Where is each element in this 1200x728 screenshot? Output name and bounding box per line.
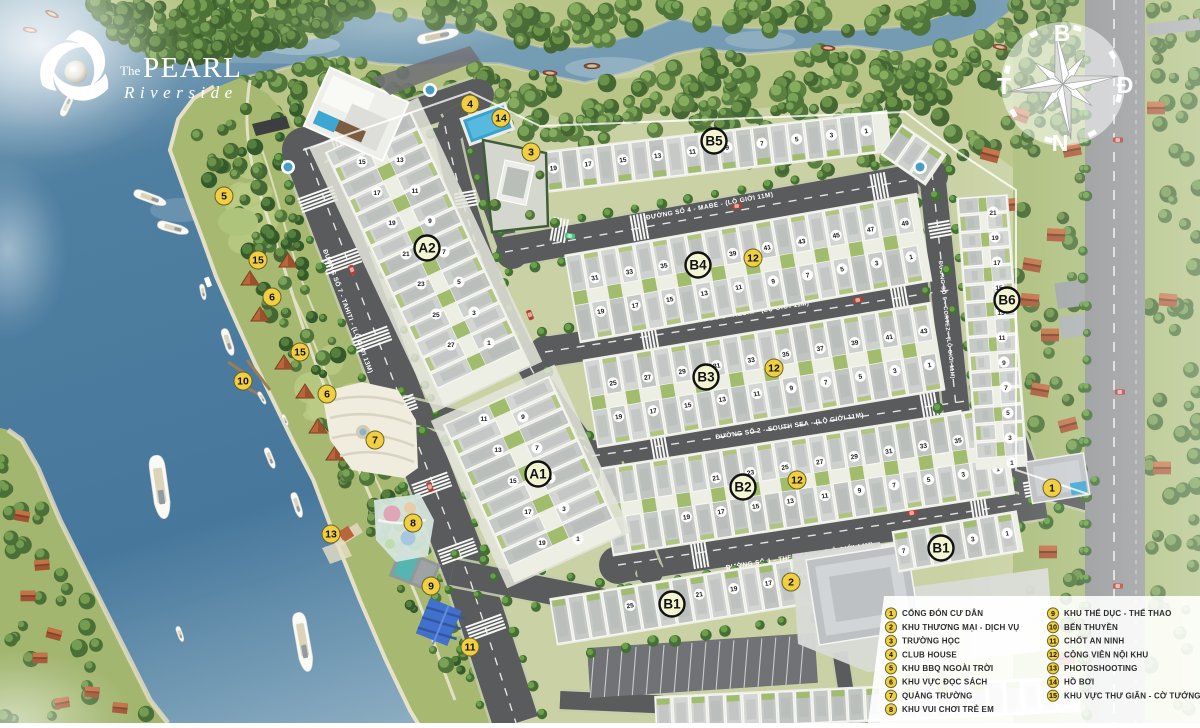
svg-text:13: 13: [1049, 664, 1057, 673]
svg-text:31: 31: [885, 448, 894, 456]
svg-text:7: 7: [372, 435, 378, 447]
svg-text:KHU VỰC THƯ GIÃN - CỜ TƯỚNG: KHU VỰC THƯ GIÃN - CỜ TƯỚNG: [1064, 691, 1200, 700]
svg-text:2: 2: [889, 623, 893, 632]
svg-text:KHU THƯƠNG MẠI - DỊCH VỤ: KHU THƯƠNG MẠI - DỊCH VỤ: [902, 623, 1019, 632]
svg-text:B: B: [1054, 20, 1071, 46]
svg-text:1: 1: [576, 536, 580, 543]
svg-text:1: 1: [487, 340, 491, 347]
svg-text:17: 17: [373, 190, 381, 197]
svg-text:8: 8: [410, 518, 416, 530]
svg-text:13: 13: [325, 529, 337, 541]
svg-text:9: 9: [428, 581, 434, 593]
svg-text:A2: A2: [418, 241, 435, 256]
svg-text:15: 15: [1049, 691, 1057, 700]
svg-text:PHOTOSHOOTING: PHOTOSHOOTING: [1064, 664, 1138, 673]
svg-text:19: 19: [682, 514, 691, 522]
svg-text:CHỐT AN NINH: CHỐT AN NINH: [1064, 636, 1124, 646]
svg-text:12: 12: [768, 363, 780, 375]
svg-text:CỔNG ĐÓN CƯ DÂN: CỔNG ĐÓN CƯ DÂN: [902, 609, 983, 618]
svg-text:25: 25: [781, 464, 790, 472]
svg-text:3: 3: [528, 147, 534, 159]
svg-text:17: 17: [524, 509, 532, 516]
svg-text:37: 37: [816, 345, 825, 353]
svg-text:7: 7: [889, 691, 893, 700]
svg-text:13: 13: [718, 396, 727, 404]
svg-text:11: 11: [689, 148, 697, 156]
svg-text:12: 12: [1049, 650, 1057, 659]
svg-text:10: 10: [1049, 623, 1057, 632]
svg-text:3: 3: [889, 636, 893, 645]
svg-text:19: 19: [549, 165, 557, 173]
svg-text:35: 35: [782, 351, 791, 359]
svg-text:B4: B4: [689, 258, 707, 273]
svg-text:15: 15: [619, 157, 627, 165]
svg-text:17: 17: [764, 580, 773, 588]
svg-text:14: 14: [1049, 677, 1057, 686]
svg-text:6: 6: [889, 677, 893, 686]
svg-text:23: 23: [417, 281, 425, 288]
svg-text:19: 19: [388, 220, 396, 227]
svg-text:7: 7: [535, 445, 539, 452]
svg-text:B2: B2: [734, 480, 751, 495]
svg-text:10: 10: [237, 376, 249, 388]
svg-text:B3: B3: [697, 370, 715, 385]
svg-text:25: 25: [626, 602, 635, 610]
svg-text:11: 11: [412, 188, 419, 195]
svg-text:29: 29: [678, 368, 687, 376]
svg-text:14: 14: [495, 113, 507, 125]
svg-text:15: 15: [252, 255, 264, 267]
svg-text:27: 27: [644, 374, 653, 382]
svg-text:2: 2: [788, 577, 794, 589]
svg-text:25: 25: [609, 380, 618, 388]
svg-text:19: 19: [615, 413, 624, 421]
svg-text:B1: B1: [932, 541, 950, 556]
svg-text:25: 25: [432, 312, 440, 319]
svg-text:5: 5: [457, 279, 461, 286]
svg-text:TRƯỜNG HỌC: TRƯỜNG HỌC: [902, 637, 960, 646]
svg-text:17: 17: [649, 408, 658, 416]
svg-text:B1: B1: [663, 597, 681, 612]
svg-text:15: 15: [752, 503, 761, 511]
svg-text:17: 17: [717, 508, 726, 516]
svg-text:13: 13: [494, 447, 502, 454]
svg-text:4: 4: [889, 650, 893, 659]
svg-text:PEARL: PEARL: [143, 52, 242, 84]
svg-text:Riverside: Riverside: [123, 83, 238, 102]
svg-text:11: 11: [821, 492, 829, 500]
svg-text:15: 15: [358, 159, 366, 166]
svg-text:KHU VUI CHƠI TRẺ EM: KHU VUI CHƠI TRẺ EM: [902, 705, 994, 714]
svg-text:11: 11: [481, 416, 488, 423]
svg-text:27: 27: [816, 459, 825, 467]
svg-text:Đ: Đ: [1117, 72, 1134, 98]
svg-text:21: 21: [712, 475, 721, 483]
svg-text:1: 1: [1049, 483, 1055, 495]
svg-text:12: 12: [747, 253, 759, 265]
svg-text:3: 3: [562, 506, 566, 513]
svg-text:13: 13: [396, 157, 404, 164]
svg-text:13: 13: [786, 498, 795, 506]
svg-text:1: 1: [889, 609, 893, 618]
svg-text:T: T: [997, 73, 1011, 99]
svg-text:21: 21: [695, 591, 704, 599]
svg-text:19: 19: [730, 585, 739, 593]
svg-text:3: 3: [472, 310, 476, 317]
svg-text:8: 8: [889, 705, 893, 714]
svg-text:27: 27: [447, 342, 455, 349]
svg-text:12: 12: [791, 475, 803, 487]
svg-text:43: 43: [920, 328, 929, 336]
svg-text:15: 15: [684, 402, 693, 410]
svg-text:19: 19: [538, 540, 546, 547]
svg-text:KHU THỂ DỤC - THỂ THAO: KHU THỂ DỤC - THỂ THAO: [1064, 609, 1172, 618]
svg-text:QUẢNG TRƯỜNG: QUẢNG TRƯỜNG: [902, 691, 973, 700]
svg-text:6: 6: [269, 292, 275, 304]
svg-text:The: The: [120, 63, 140, 78]
svg-text:B5: B5: [705, 134, 723, 149]
svg-text:17: 17: [584, 161, 592, 169]
svg-text:15: 15: [294, 347, 306, 359]
svg-text:N: N: [1052, 130, 1069, 156]
svg-text:33: 33: [747, 357, 756, 365]
svg-text:KHU BBQ NGOÀI TRỜI: KHU BBQ NGOÀI TRỜI: [902, 664, 993, 673]
svg-text:41: 41: [885, 334, 894, 342]
svg-text:6: 6: [324, 389, 330, 401]
svg-text:HỒ BƠI: HỒ BƠI: [1064, 677, 1094, 687]
svg-text:29: 29: [850, 453, 859, 461]
svg-text:9: 9: [1051, 609, 1055, 618]
svg-text:9: 9: [428, 218, 432, 225]
svg-text:33: 33: [919, 443, 928, 451]
svg-text:7: 7: [442, 249, 446, 256]
svg-text:KHU VỰC ĐỌC SÁCH: KHU VỰC ĐỌC SÁCH: [902, 678, 987, 687]
svg-text:B6: B6: [998, 293, 1016, 308]
svg-text:BẾN THUYỀN: BẾN THUYỀN: [1064, 622, 1118, 632]
svg-text:11: 11: [1049, 636, 1057, 645]
svg-text:CLUB HOUSE: CLUB HOUSE: [902, 650, 957, 659]
svg-text:21: 21: [402, 251, 410, 258]
svg-text:9: 9: [521, 414, 525, 421]
svg-text:13: 13: [654, 153, 662, 161]
svg-text:A1: A1: [529, 467, 547, 482]
svg-text:39: 39: [851, 339, 860, 347]
svg-text:4: 4: [467, 99, 473, 111]
svg-text:5: 5: [889, 664, 893, 673]
svg-text:11: 11: [464, 642, 475, 654]
svg-text:CÔNG VIÊN NỘI KHU: CÔNG VIÊN NỘI KHU: [1064, 650, 1148, 659]
svg-text:15: 15: [509, 478, 517, 485]
svg-text:5: 5: [221, 191, 227, 203]
